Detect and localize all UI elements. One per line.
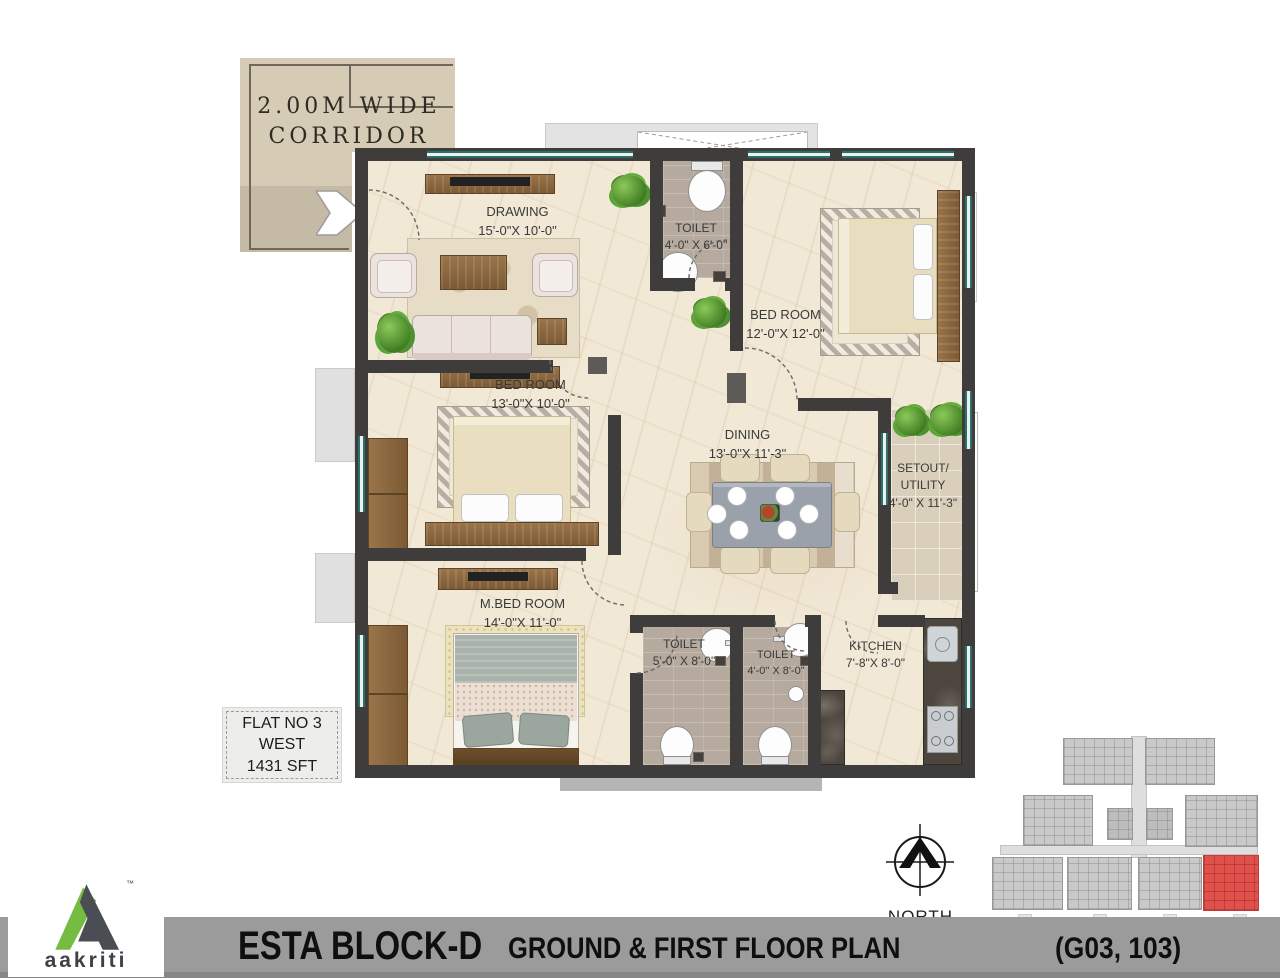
- aakriti-logo-icon: [36, 881, 140, 953]
- door-arc: [745, 348, 797, 400]
- flat-number: FLAT NO 3: [227, 713, 337, 735]
- room-size: 15'-0"X 10'-0": [460, 222, 575, 241]
- room-name: BED ROOM: [723, 306, 848, 325]
- room-size: 13'-0"X 11'-3": [685, 445, 810, 464]
- room-size: 4'-0" X 11'-3": [883, 495, 963, 512]
- keyplan-stair: [1146, 808, 1173, 840]
- drawing-room-label: DRAWING 15'-0"X 10'-0": [460, 203, 575, 241]
- room-name: TOILET: [740, 648, 812, 664]
- keyplan-highlighted-unit: [1203, 855, 1259, 911]
- toilet3-label: TOILET 4'-0" X 8'-0": [740, 648, 812, 680]
- keyplan-stair: [1107, 808, 1133, 840]
- keyplan-unit: [992, 857, 1063, 910]
- keyplan-unit: [1063, 738, 1133, 785]
- room-name: UTILITY: [883, 477, 963, 494]
- room-size: 12'-0"X 12'-0": [723, 325, 848, 344]
- toilet2-label: TOILET 5'-0" X 8'-0": [638, 636, 730, 671]
- flat-facing: WEST: [227, 734, 337, 756]
- footer-bar-edge: [0, 972, 1280, 978]
- north-arrow-icon: [878, 820, 963, 900]
- kitchen-label: KITCHEN 7'-8"X 8'-0": [833, 638, 918, 673]
- keyplan-unit: [1185, 795, 1258, 847]
- room-size: 14'-0"X 11'-0": [460, 614, 585, 633]
- keyplan-unit: [1138, 857, 1202, 910]
- footer-unit-numbers: (G03, 103): [1055, 932, 1181, 966]
- north-compass: NORTH: [878, 820, 963, 922]
- room-name: TOILET: [638, 636, 730, 653]
- dining-label: DINING 13'-0"X 11'-3": [685, 426, 810, 464]
- room-size: 4'-0" X 8'-0": [740, 664, 812, 680]
- footer-block-title: ESTA BLOCK-D: [238, 924, 482, 969]
- setout-label: SETOUT/ UTILITY 4'-0" X 11'-3": [883, 460, 963, 512]
- door-arc: [369, 190, 419, 240]
- keyplan-unit: [1145, 738, 1215, 785]
- left-projection: [315, 368, 355, 462]
- corridor-label-line2: CORRIDOR: [244, 122, 454, 152]
- toilet1-label: TOILET 4'-0" X 6'-0": [651, 220, 741, 255]
- room-name: TOILET: [651, 220, 741, 237]
- room-name: BED ROOM: [468, 376, 593, 395]
- door-arc: [775, 621, 805, 651]
- room-size: 4'-0" X 6'-0": [651, 237, 741, 254]
- trademark-symbol: ™: [126, 879, 134, 888]
- footer-plan-title: GROUND & FIRST FLOOR PLAN: [508, 932, 900, 966]
- room-name: SETOUT/: [883, 460, 963, 477]
- bedroom2-label: BED ROOM 13'-0"X 10'-0": [468, 376, 593, 414]
- room-name: KITCHEN: [833, 638, 918, 655]
- corridor-line: [249, 64, 453, 66]
- flat-info-box: FLAT NO 3 WEST 1431 SFT: [222, 707, 342, 783]
- flat-area: 1431 SFT: [227, 756, 337, 778]
- bedroom1-label: BED ROOM 12'-0"X 12'-0": [723, 306, 848, 344]
- room-size: 7'-8"X 8'-0": [833, 655, 918, 672]
- room-name: DRAWING: [460, 203, 575, 222]
- master-bedroom-label: M.BED ROOM 14'-0"X 11'-0": [460, 595, 585, 633]
- keyplan-unit: [1067, 857, 1132, 910]
- room-name: M.BED ROOM: [460, 595, 585, 614]
- room-name: DINING: [685, 426, 810, 445]
- corridor-label: 2.00M WIDE CORRIDOR: [244, 92, 454, 151]
- logo-brand-name: aakriti: [8, 949, 164, 973]
- keyplan-unit: [1023, 795, 1093, 846]
- key-plan: [988, 733, 1270, 931]
- flat-info-inner: FLAT NO 3 WEST 1431 SFT: [226, 711, 338, 779]
- left-projection: [315, 553, 355, 623]
- corridor-line: [249, 248, 349, 250]
- room-size: 13'-0"X 10'-0": [468, 395, 593, 414]
- door-arc: [582, 561, 626, 605]
- floor-plan-page: 2.00M WIDE CORRIDOR: [0, 0, 1280, 978]
- floor-plan: DRAWING 15'-0"X 10'-0" TOILET 4'-0" X 6'…: [355, 148, 975, 778]
- corridor-label-line1: 2.00M WIDE: [244, 92, 454, 122]
- logo-box: ™ aakriti: [8, 877, 164, 977]
- bottom-sill: [560, 778, 822, 791]
- room-size: 5'-0" X 8'-0": [638, 653, 730, 670]
